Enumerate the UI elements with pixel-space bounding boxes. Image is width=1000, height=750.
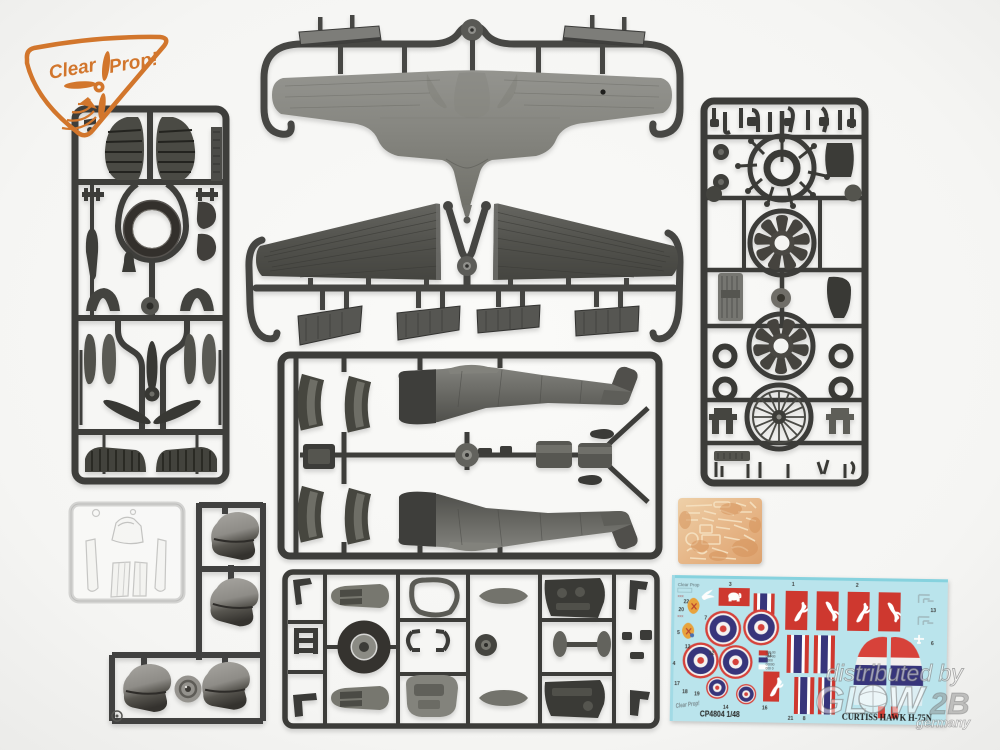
svg-text:17: 17 <box>674 681 680 687</box>
svg-text:xxx: xxx <box>678 593 684 598</box>
svg-text:12: 12 <box>709 651 715 657</box>
svg-text:000 0: 000 0 <box>766 666 774 670</box>
svg-text:13: 13 <box>930 608 936 614</box>
svg-text:12: 12 <box>685 644 691 650</box>
svg-text:germany: germany <box>915 715 971 730</box>
svg-text:7: 7 <box>704 616 707 622</box>
svg-text:8: 8 <box>803 716 806 722</box>
svg-text:Clear Prop: Clear Prop <box>678 582 700 587</box>
svg-text:1: 1 <box>792 582 795 588</box>
svg-text:2: 2 <box>856 583 859 589</box>
svg-text:21: 21 <box>788 716 794 722</box>
svg-text:19: 19 <box>694 691 700 697</box>
svg-text:18: 18 <box>682 689 688 695</box>
svg-text:5: 5 <box>677 630 680 636</box>
svg-text:xxx: xxx <box>677 613 683 618</box>
svg-text:16: 16 <box>762 705 768 711</box>
svg-text:4: 4 <box>673 661 676 667</box>
svg-text:CP4804 1/48: CP4804 1/48 <box>700 708 740 719</box>
svg-text:3: 3 <box>729 582 732 588</box>
svg-text:6: 6 <box>931 641 934 647</box>
